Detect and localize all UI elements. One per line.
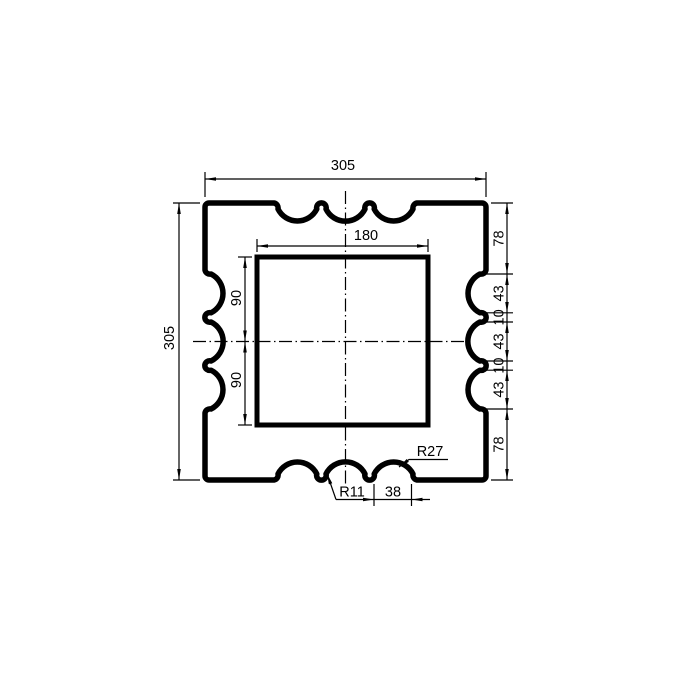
- leader-line: [327, 474, 336, 500]
- chain-label-43-2: 43: [492, 333, 508, 349]
- chain-label-10-2: 10: [492, 358, 508, 374]
- radius-r27-label: R27: [417, 444, 444, 460]
- part-geometry: [193, 191, 486, 487]
- chain-label-78-bottom: 78: [492, 436, 508, 452]
- radius-r11-label: R11: [339, 485, 365, 501]
- cad-drawing: 305 305 180 90 90: [0, 0, 686, 686]
- chain-label-10-1: 10: [492, 309, 508, 325]
- dim-upper-half-label: 90: [229, 290, 245, 306]
- dim-outer-height-label: 305: [162, 326, 178, 350]
- chain-label-43-3: 43: [492, 382, 508, 398]
- dim-scallop-chord: 38: [374, 484, 430, 506]
- chain-label-43-1: 43: [492, 285, 508, 301]
- dim-outer-width-label: 305: [331, 158, 355, 174]
- chain-label-78-top: 78: [492, 230, 508, 246]
- dim-inner-width-label: 180: [354, 228, 378, 244]
- dim-scallop-chord-label: 38: [385, 485, 401, 501]
- dim-lower-half-label: 90: [229, 372, 245, 388]
- dim-inner-width: 180: [257, 228, 428, 252]
- drawing-canvas: 305 305 180 90 90: [0, 0, 686, 686]
